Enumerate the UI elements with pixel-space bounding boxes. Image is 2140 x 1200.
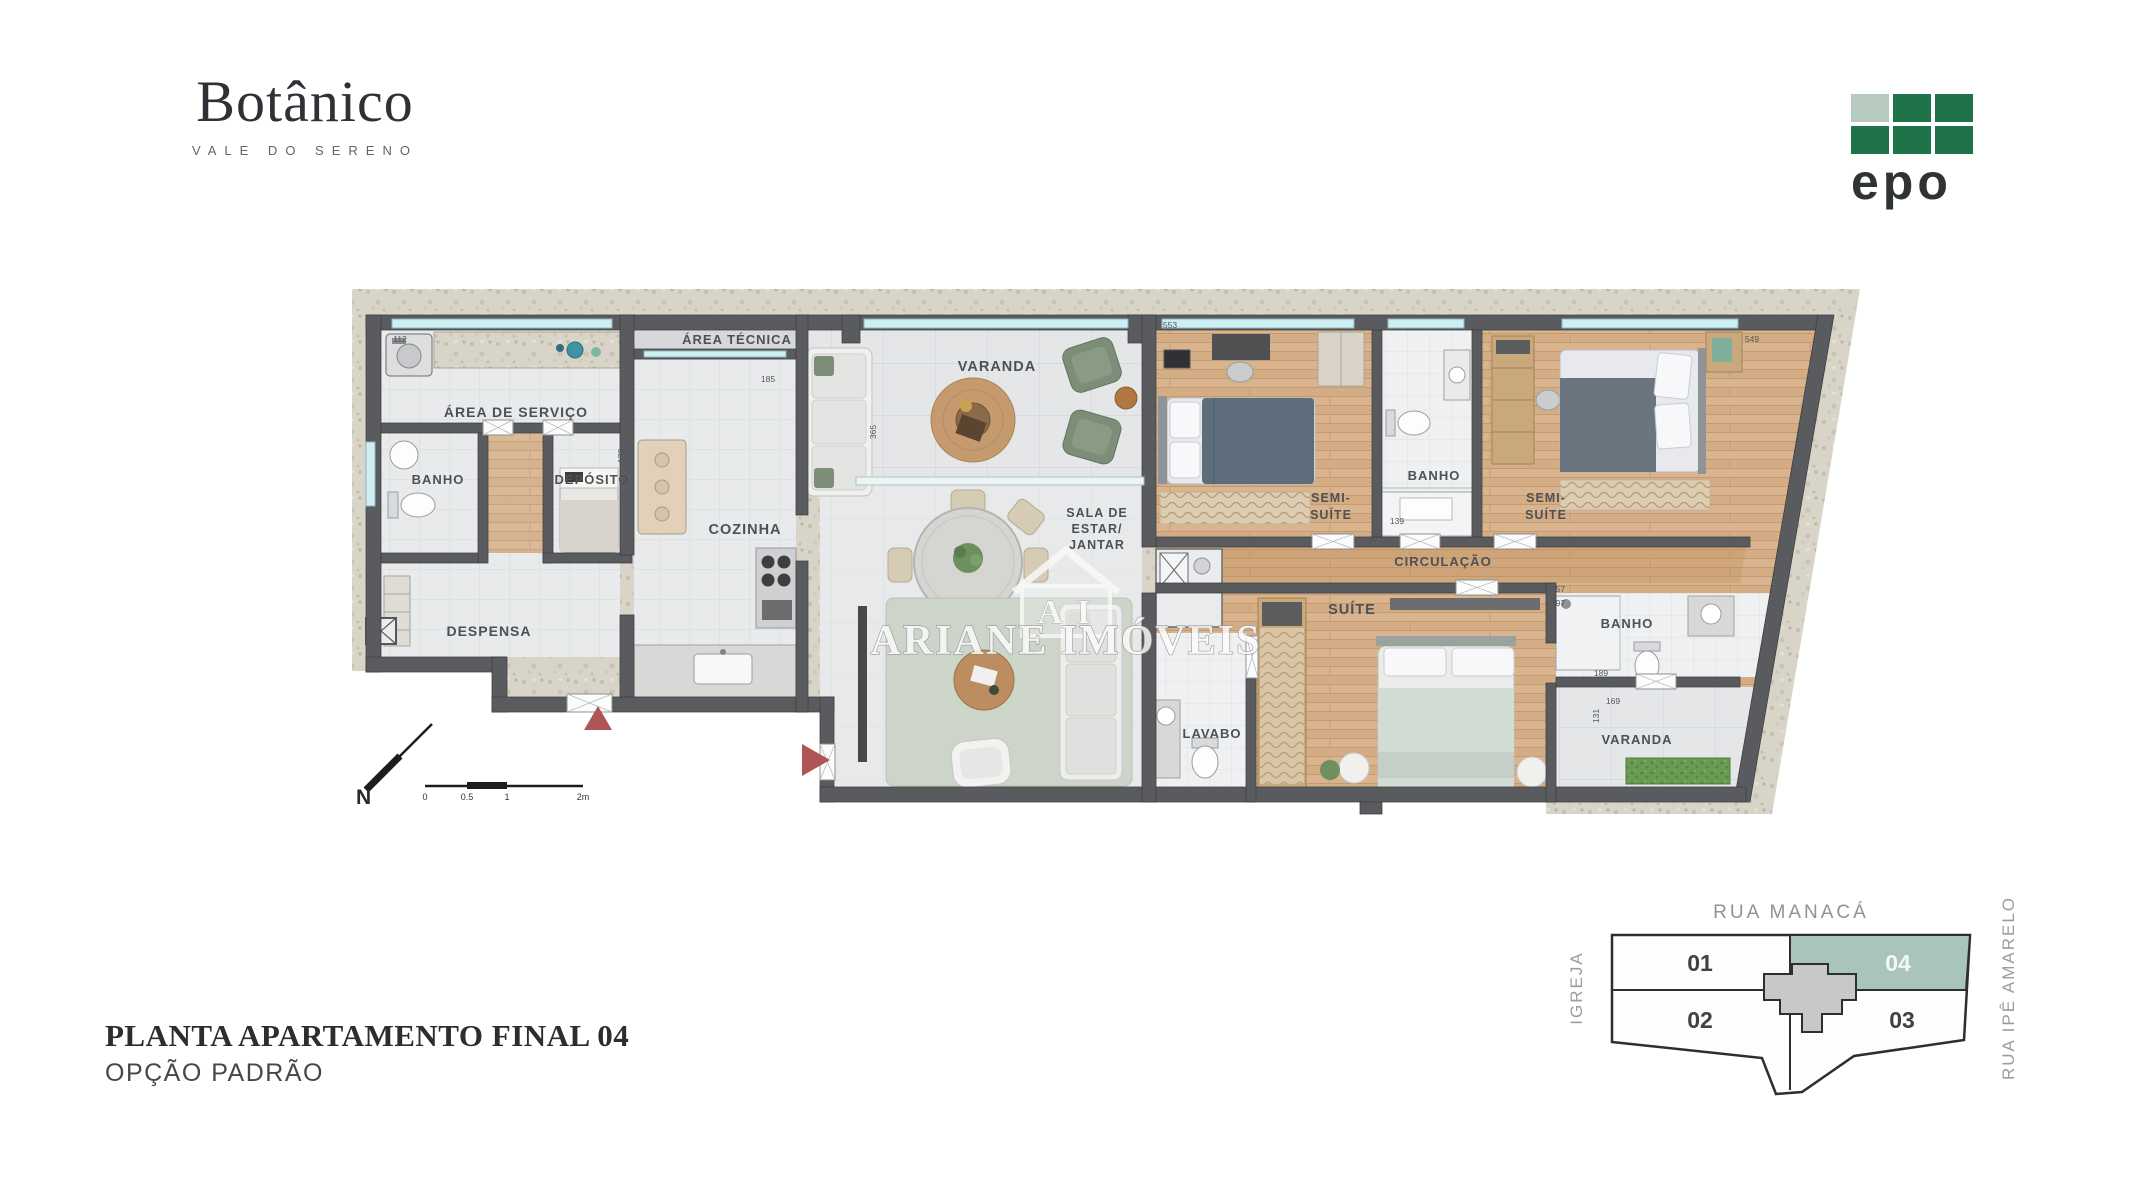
- north-arrow: N: [356, 724, 432, 809]
- room-label-semi-suite2-a: SEMI-: [1526, 491, 1566, 505]
- room-label-cozinha: COZINHA: [708, 522, 781, 538]
- keyplan-unit-03: 03: [1889, 1007, 1915, 1033]
- watermark-name: ARIANE IMÓVEIS: [871, 617, 1262, 664]
- dimension-label: 178: [616, 449, 626, 463]
- room-label-area-tecnica: ÁREA TÉCNICA: [682, 332, 792, 347]
- room-label-area-servico: ÁREA DE SERVIÇO: [444, 404, 588, 420]
- room-label-varanda-suite: VARANDA: [1601, 732, 1672, 747]
- stove: [756, 548, 796, 628]
- room-label-despensa: DESPENSA: [446, 623, 531, 639]
- room-label-lavabo: LAVABO: [1183, 726, 1242, 741]
- keyplan-unit-01: 01: [1687, 950, 1713, 976]
- dimension-label: 357: [1551, 584, 1565, 594]
- kitchen-counter: [634, 645, 796, 697]
- dimension-label: 189: [1594, 668, 1608, 678]
- north-label: N: [356, 786, 371, 809]
- scale-tick: 2m: [577, 792, 590, 802]
- dimension-label: 112: [393, 334, 407, 344]
- room-label-semi-suite1-a: SEMI-: [1311, 491, 1351, 505]
- dimension-label: 549: [1745, 334, 1759, 344]
- dimension-label: 553: [1163, 320, 1177, 330]
- service-counter: [434, 332, 620, 368]
- dimension-label: 131: [1591, 709, 1601, 723]
- tv-panel: [858, 606, 867, 762]
- grass-strip: [1626, 758, 1730, 784]
- round-rug: [931, 378, 1015, 462]
- dimension-label: 185: [761, 374, 775, 384]
- side-table: [1115, 387, 1137, 409]
- room-label-sala-2: ESTAR/: [1072, 522, 1123, 536]
- room-label-banho-servico: BANHO: [412, 472, 465, 487]
- dimension-label: 365: [868, 425, 878, 439]
- armchair-white: [950, 737, 1012, 789]
- sofa-balcony: [806, 348, 872, 496]
- keyplan-street-top: RUA MANACÁ: [1713, 902, 1869, 923]
- scale-bar: 0 0.5 1 2m: [422, 782, 589, 802]
- room-label-varanda: VARANDA: [958, 359, 1036, 375]
- keyplan-unit-02: 02: [1687, 1007, 1713, 1033]
- scale-tick: 0.5: [461, 792, 474, 802]
- room-label-sala-1: SALA DE: [1066, 506, 1127, 520]
- room-label-circulacao: CIRCULAÇÃO: [1394, 554, 1491, 569]
- room-label-banho-semi: BANHO: [1408, 468, 1461, 483]
- keyplan-street-right: RUA IPÊ AMARELO: [1999, 896, 2018, 1080]
- room-label-banho-suite: BANHO: [1601, 616, 1654, 631]
- room-label-deposito: DEPÓSITO: [555, 472, 630, 487]
- room-label-semi-suite1-b: SUÍTE: [1310, 507, 1352, 522]
- dimension-label: 139: [1390, 516, 1404, 526]
- scale-tick: 1: [504, 792, 509, 802]
- floor-plan: ÁREA DE SERVIÇO BANHO DEPÓSITO DESPENSA …: [0, 0, 2140, 1200]
- fridge: [638, 440, 686, 534]
- keyplan-street-left: IGREJA: [1567, 951, 1586, 1024]
- keyplan-unit-04: 04: [1885, 950, 1911, 976]
- dimension-label: 397: [1551, 598, 1565, 608]
- scale-tick: 0: [422, 792, 427, 802]
- room-label-semi-suite2-b: SUÍTE: [1525, 507, 1567, 522]
- dimension-label: 169: [1606, 696, 1620, 706]
- keyplan: RUA MANACÁ IGREJA RUA IPÊ AMARELO 01 02 …: [1567, 896, 2018, 1094]
- room-label-sala-3: JANTAR: [1069, 538, 1125, 552]
- room-label-suite: SUÍTE: [1328, 601, 1376, 618]
